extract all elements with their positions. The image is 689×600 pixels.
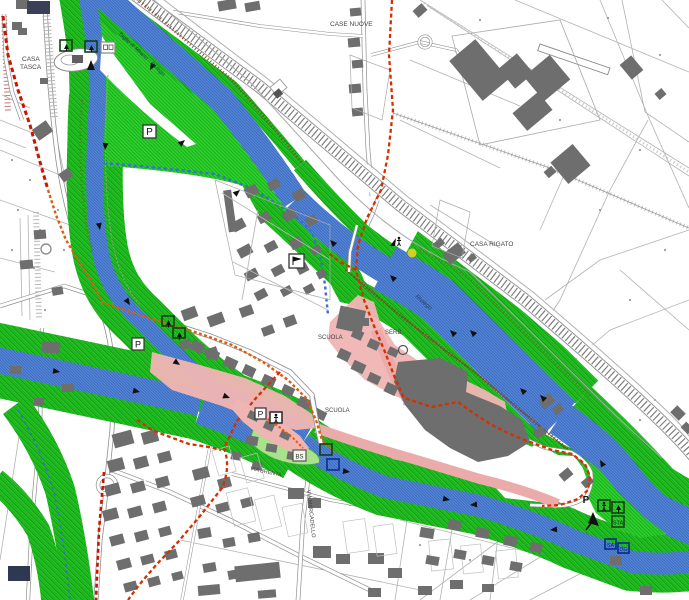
svg-text:DG: DG [619,547,627,553]
svg-text:SERB.: SERB. [385,330,403,336]
svg-text:P: P [583,495,590,506]
svg-text:CASA RIGATO: CASA RIGATO [470,241,513,248]
svg-text:CASA: CASA [22,56,40,63]
svg-text:P: P [258,409,264,419]
svg-text:STA: STA [613,521,624,527]
svg-text:SCUOLA: SCUOLA [318,335,343,341]
svg-text:P: P [146,127,153,138]
svg-text:SCUOLA: SCUOLA [325,408,350,414]
svg-text:CASE NUOVE: CASE NUOVE [330,21,373,28]
svg-text:P: P [135,340,141,350]
svg-text:SA: SA [607,543,615,549]
svg-text:TASCA: TASCA [20,64,42,71]
svg-text:BS: BS [295,455,303,461]
